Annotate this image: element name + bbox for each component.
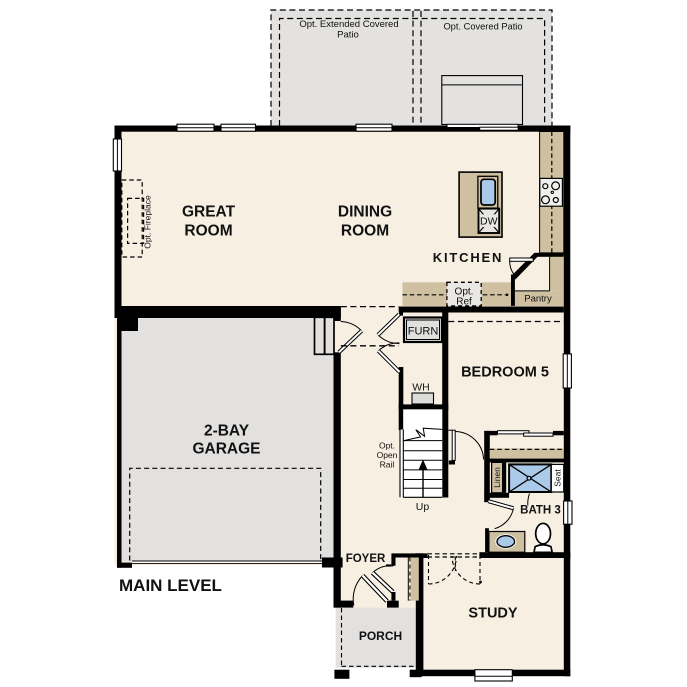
svg-text:Patio: Patio bbox=[337, 30, 359, 41]
svg-text:GARAGE: GARAGE bbox=[192, 441, 260, 458]
svg-text:FOYER: FOYER bbox=[346, 553, 386, 565]
svg-text:Linen: Linen bbox=[492, 467, 502, 488]
svg-text:ROOM: ROOM bbox=[184, 223, 232, 240]
svg-text:Opt.: Opt. bbox=[379, 441, 395, 451]
svg-text:Rail: Rail bbox=[380, 460, 395, 470]
svg-text:ROOM: ROOM bbox=[341, 223, 389, 240]
svg-text:WH: WH bbox=[412, 382, 430, 394]
svg-text:Up: Up bbox=[416, 501, 430, 513]
svg-text:Opt. Extended Covered: Opt. Extended Covered bbox=[299, 19, 398, 30]
svg-text:Opt. Covered Patio: Opt. Covered Patio bbox=[443, 22, 522, 32]
svg-text:Open: Open bbox=[377, 450, 398, 460]
svg-text:GREAT: GREAT bbox=[182, 204, 236, 221]
svg-text:KITCHEN: KITCHEN bbox=[433, 250, 503, 265]
svg-text:STUDY: STUDY bbox=[468, 606, 517, 622]
svg-text:DW: DW bbox=[480, 216, 498, 228]
svg-text:Ref: Ref bbox=[456, 297, 472, 308]
svg-text:FURN: FURN bbox=[408, 326, 439, 338]
svg-text:BATH 3: BATH 3 bbox=[520, 505, 561, 517]
svg-text:2-BAY: 2-BAY bbox=[204, 423, 250, 440]
svg-text:DINING: DINING bbox=[338, 204, 392, 221]
svg-text:Opt. Fireplace: Opt. Fireplace bbox=[143, 195, 153, 249]
svg-text:Pantry: Pantry bbox=[524, 294, 552, 305]
svg-text:Seat: Seat bbox=[553, 469, 563, 487]
svg-text:BEDROOM 5: BEDROOM 5 bbox=[461, 365, 549, 381]
svg-text:MAIN LEVEL: MAIN LEVEL bbox=[119, 576, 222, 595]
svg-text:PORCH: PORCH bbox=[359, 629, 402, 643]
